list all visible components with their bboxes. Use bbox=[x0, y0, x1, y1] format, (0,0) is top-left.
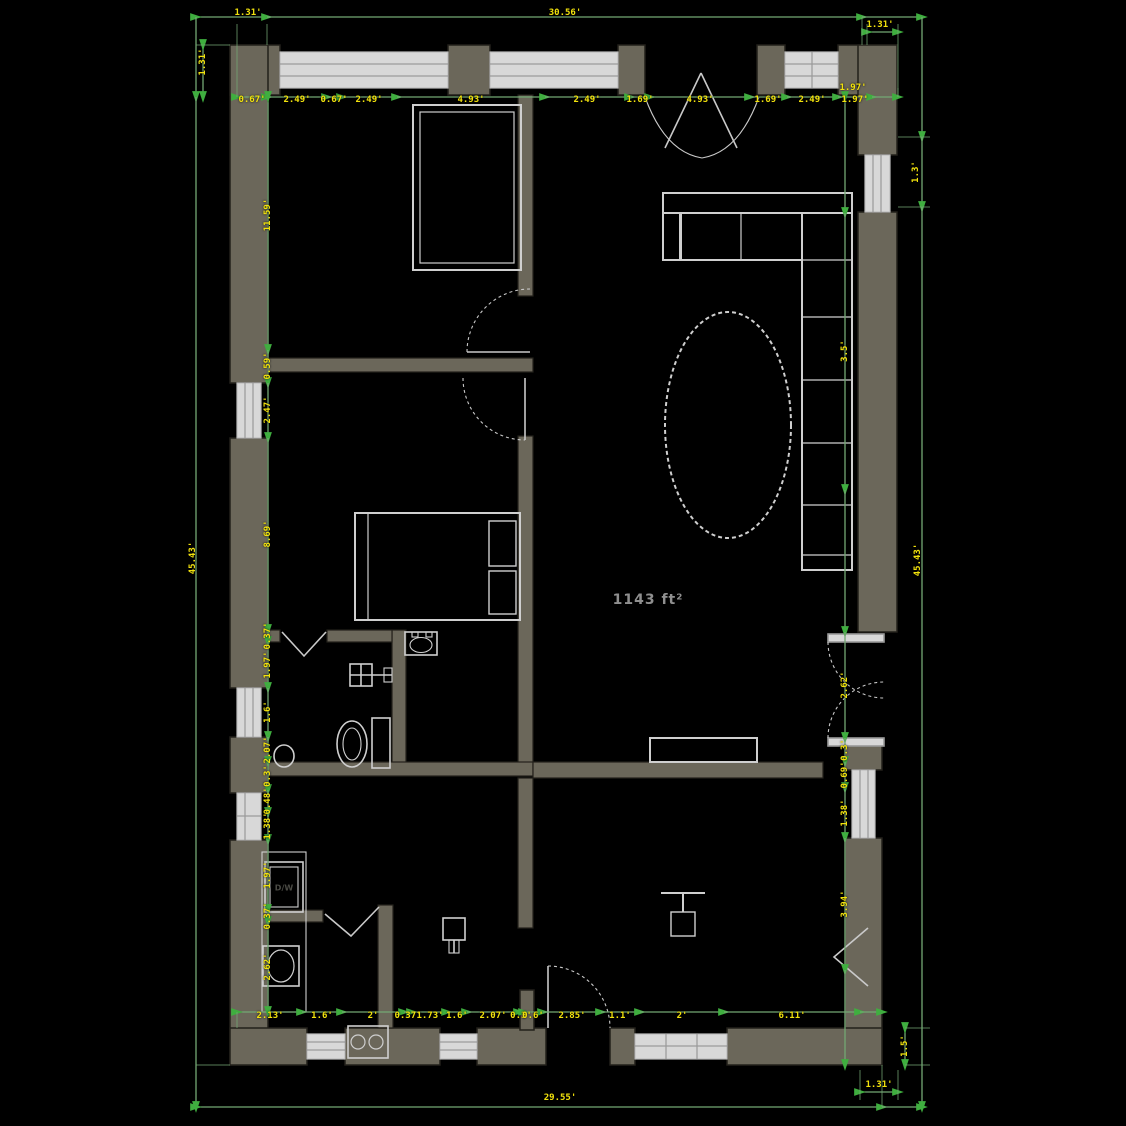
windows bbox=[237, 52, 890, 1059]
bed-icon bbox=[355, 513, 520, 620]
window-icon bbox=[490, 52, 618, 88]
exterior-walls bbox=[230, 45, 897, 1065]
floor-plan-canvas: 1143 ft² D/W 1.31'30.56'1.31'0.67'2.49'0… bbox=[0, 0, 1126, 1126]
window-icon bbox=[852, 770, 875, 838]
dining-table-icon bbox=[665, 312, 791, 538]
window-icon bbox=[237, 383, 261, 438]
bifold-door-icon bbox=[282, 632, 326, 656]
sink-icon bbox=[405, 632, 437, 655]
interior-walls bbox=[268, 95, 823, 1028]
sink-icon bbox=[350, 664, 392, 686]
wall-sink-icon bbox=[661, 893, 705, 936]
window-icon bbox=[237, 688, 261, 737]
window-icon bbox=[635, 1034, 727, 1059]
doors bbox=[282, 73, 884, 1028]
bathroom-fixtures bbox=[274, 632, 437, 768]
tv-console-icon bbox=[650, 738, 757, 762]
bifold-door-icon bbox=[325, 907, 379, 936]
entry-door-icon bbox=[645, 73, 759, 158]
window-icon bbox=[307, 1034, 345, 1059]
window-icon bbox=[785, 52, 838, 88]
hall-sink-icon bbox=[443, 918, 465, 953]
window-icon bbox=[440, 1034, 477, 1059]
window-icon bbox=[237, 793, 261, 840]
floor-plan-drawing bbox=[0, 0, 1126, 1126]
window-icon bbox=[865, 155, 890, 212]
dishwasher-icon bbox=[265, 862, 303, 912]
sofa-icon bbox=[663, 193, 852, 260]
window-icon bbox=[280, 52, 448, 88]
furniture bbox=[355, 105, 852, 936]
door-swing-icon bbox=[463, 378, 525, 440]
toilet-icon bbox=[337, 718, 390, 768]
door-swing-icon bbox=[467, 289, 530, 352]
closet-icon bbox=[413, 105, 521, 270]
balcony-door-icon bbox=[828, 634, 884, 746]
kitchen-fixtures bbox=[262, 852, 465, 1058]
door-swing-icon bbox=[548, 966, 610, 1028]
